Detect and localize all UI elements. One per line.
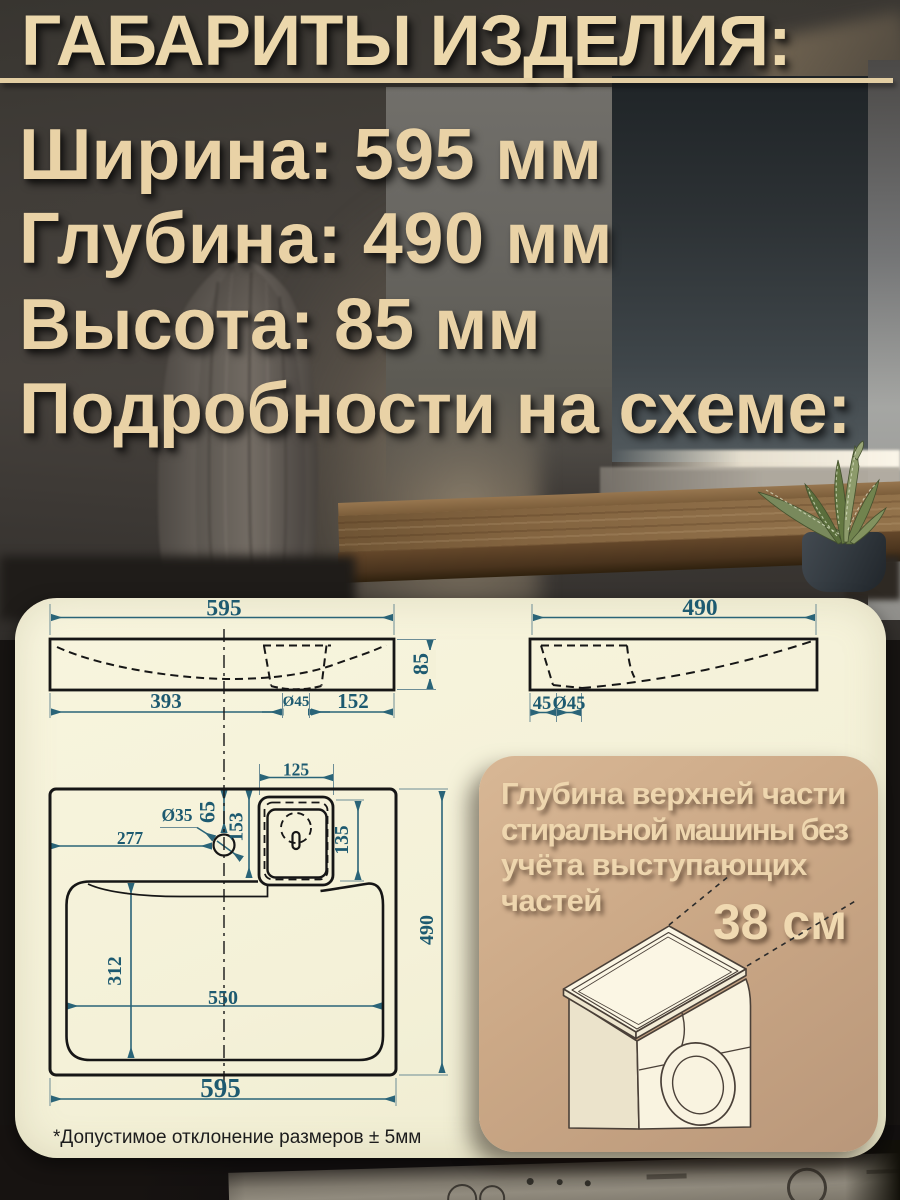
- svg-text:152: 152: [337, 689, 369, 713]
- svg-text:595: 595: [206, 596, 241, 622]
- svg-text:153: 153: [227, 812, 248, 842]
- svg-text:125: 125: [283, 760, 310, 780]
- svg-text:490: 490: [682, 595, 717, 621]
- svg-text:550: 550: [208, 987, 238, 1009]
- svg-text:393: 393: [150, 689, 182, 713]
- svg-text:85: 85: [408, 653, 433, 675]
- svg-text:312: 312: [105, 956, 126, 985]
- svg-text:45: 45: [533, 694, 552, 714]
- svg-text:Ø45: Ø45: [283, 694, 310, 710]
- svg-text:595: 595: [200, 1073, 241, 1103]
- svg-text:Ø45: Ø45: [553, 694, 586, 714]
- svg-text:490: 490: [416, 915, 438, 945]
- svg-text:65: 65: [195, 801, 220, 823]
- svg-text:Ø35: Ø35: [161, 805, 192, 825]
- svg-text:277: 277: [117, 828, 144, 848]
- svg-text:135: 135: [332, 825, 353, 855]
